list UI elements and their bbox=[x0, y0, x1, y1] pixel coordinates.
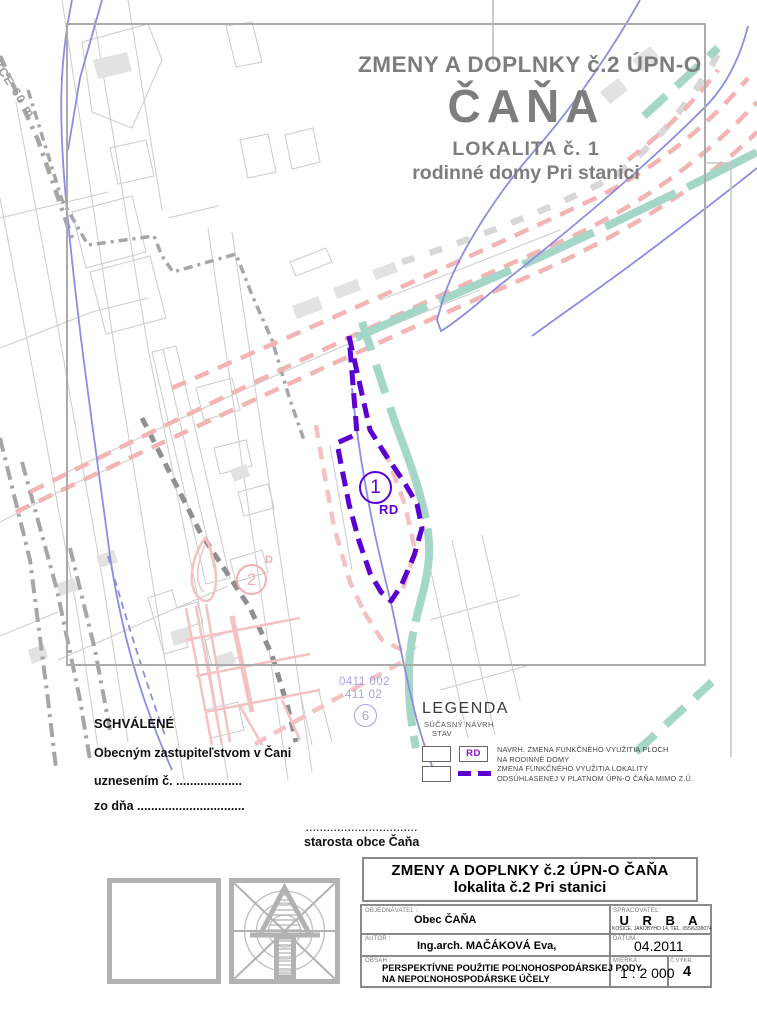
approval-heading: SCHVÁLENÉ bbox=[94, 716, 174, 731]
locality-1-marker: 1 bbox=[359, 471, 392, 504]
stamp-box bbox=[107, 878, 221, 984]
author-value: Ing.arch. MAČÁKOVÁ Eva, bbox=[417, 940, 556, 952]
author-label: AUTOR : bbox=[365, 936, 391, 942]
legend-row1-label-line2: NA RODINNÉ DOMY bbox=[497, 755, 569, 764]
legend-row1-label-line1: NAVRH. ZMENA FUNKČNÉHO VYUŽITIA PLOCH bbox=[497, 745, 668, 754]
area-6-marker: 6 bbox=[354, 704, 377, 727]
title-locality: LOKALITA č. 1 bbox=[358, 138, 694, 161]
title-line-1: ZMENY A DOPLNKY č.2 ÚPN-O bbox=[358, 52, 694, 78]
contractor-address: KOŠICE, JAKOBYHO 14, TEL. 055/6338074 bbox=[612, 926, 709, 932]
title-municipality: ČAŇA bbox=[358, 79, 694, 133]
locality-1-use-code: RD bbox=[379, 502, 399, 517]
legend-heading: LEGENDA bbox=[422, 700, 509, 718]
north-arrow-icon bbox=[234, 883, 335, 979]
scale-label: MIERKA : bbox=[613, 958, 641, 964]
legend-columns-header: SÚČASNÝ NÁVRH bbox=[424, 720, 494, 729]
client-value: Obec ČAŇA bbox=[414, 914, 476, 926]
signature-dotted-line: ................................ bbox=[306, 823, 418, 833]
titleblock-header-line1: ZMENY A DOPLNKY č.2 ÚPN-O ČAŇA bbox=[364, 862, 696, 879]
sheet-title: ZMENY A DOPLNKY č.2 ÚPN-O ČAŇA LOKALITA … bbox=[358, 52, 694, 185]
legend-current-box-2 bbox=[422, 766, 451, 782]
content-line1: PERSPEKTÍVNE POUŽITIE POĽNOHOSPODÁRSKEJ … bbox=[382, 963, 642, 973]
titleblock-header-line2: lokalita č.2 Pri stanici bbox=[364, 879, 696, 896]
locality-2-marker: 2 bbox=[236, 564, 267, 595]
content-line2: NA NEPOĽNOHOSPODÁRSKE ÚČELY bbox=[382, 974, 550, 984]
table-divider-row1 bbox=[362, 933, 710, 935]
legend-proposal-box-rd: RD bbox=[459, 746, 488, 762]
parcel-code-line1: 0411 002 bbox=[339, 676, 390, 688]
legend-dashed-line-symbol bbox=[458, 771, 492, 776]
table-divider-vertical bbox=[609, 906, 611, 986]
locality-2-suffix: D bbox=[265, 554, 273, 566]
signature-label: starosta obce Čaňa bbox=[304, 835, 419, 849]
legend-columns-header2: STAV bbox=[432, 729, 452, 738]
plan-sheet: ŽELEZNICE 60 m ZMENY A DOPLNKY č.2 ÚPN-O… bbox=[0, 0, 757, 1013]
approval-line-date: zo dňa ............................... bbox=[94, 799, 245, 813]
legend-current-box-1 bbox=[422, 746, 451, 762]
legend-row2-label-line2: ODSÚHLASENEJ V PLATNOM ÚPN-O ČAŇA MIMO Z… bbox=[497, 774, 693, 783]
approval-line-council: Obecným zastupiteľstvom v Čani bbox=[94, 746, 291, 760]
legend-row2-label-line1: ZMENA FUNKČNÉHO VYUŽITIA LOKALITY bbox=[497, 764, 648, 773]
sheet-number-value: 4 bbox=[683, 964, 691, 980]
approval-line-resolution: uznesením č. ................... bbox=[94, 774, 242, 788]
scale-value: 1 : 2 000 bbox=[620, 965, 675, 981]
titleblock-header: ZMENY A DOPLNKY č.2 ÚPN-O ČAŇA lokalita … bbox=[362, 857, 698, 902]
parcel-code-line2: 411 02 bbox=[345, 689, 382, 701]
client-label: OBJEDNÁVATEĽ : bbox=[365, 908, 418, 914]
title-subject: rodinné domy Pri stanici bbox=[358, 162, 694, 185]
titleblock-table: OBJEDNÁVATEĽ : Obec ČAŇA SPRACOVATEĽ: U … bbox=[360, 904, 712, 988]
north-arrow-box bbox=[229, 878, 340, 984]
table-divider-row2 bbox=[362, 955, 710, 957]
date-value: 04.2011 bbox=[634, 938, 684, 954]
